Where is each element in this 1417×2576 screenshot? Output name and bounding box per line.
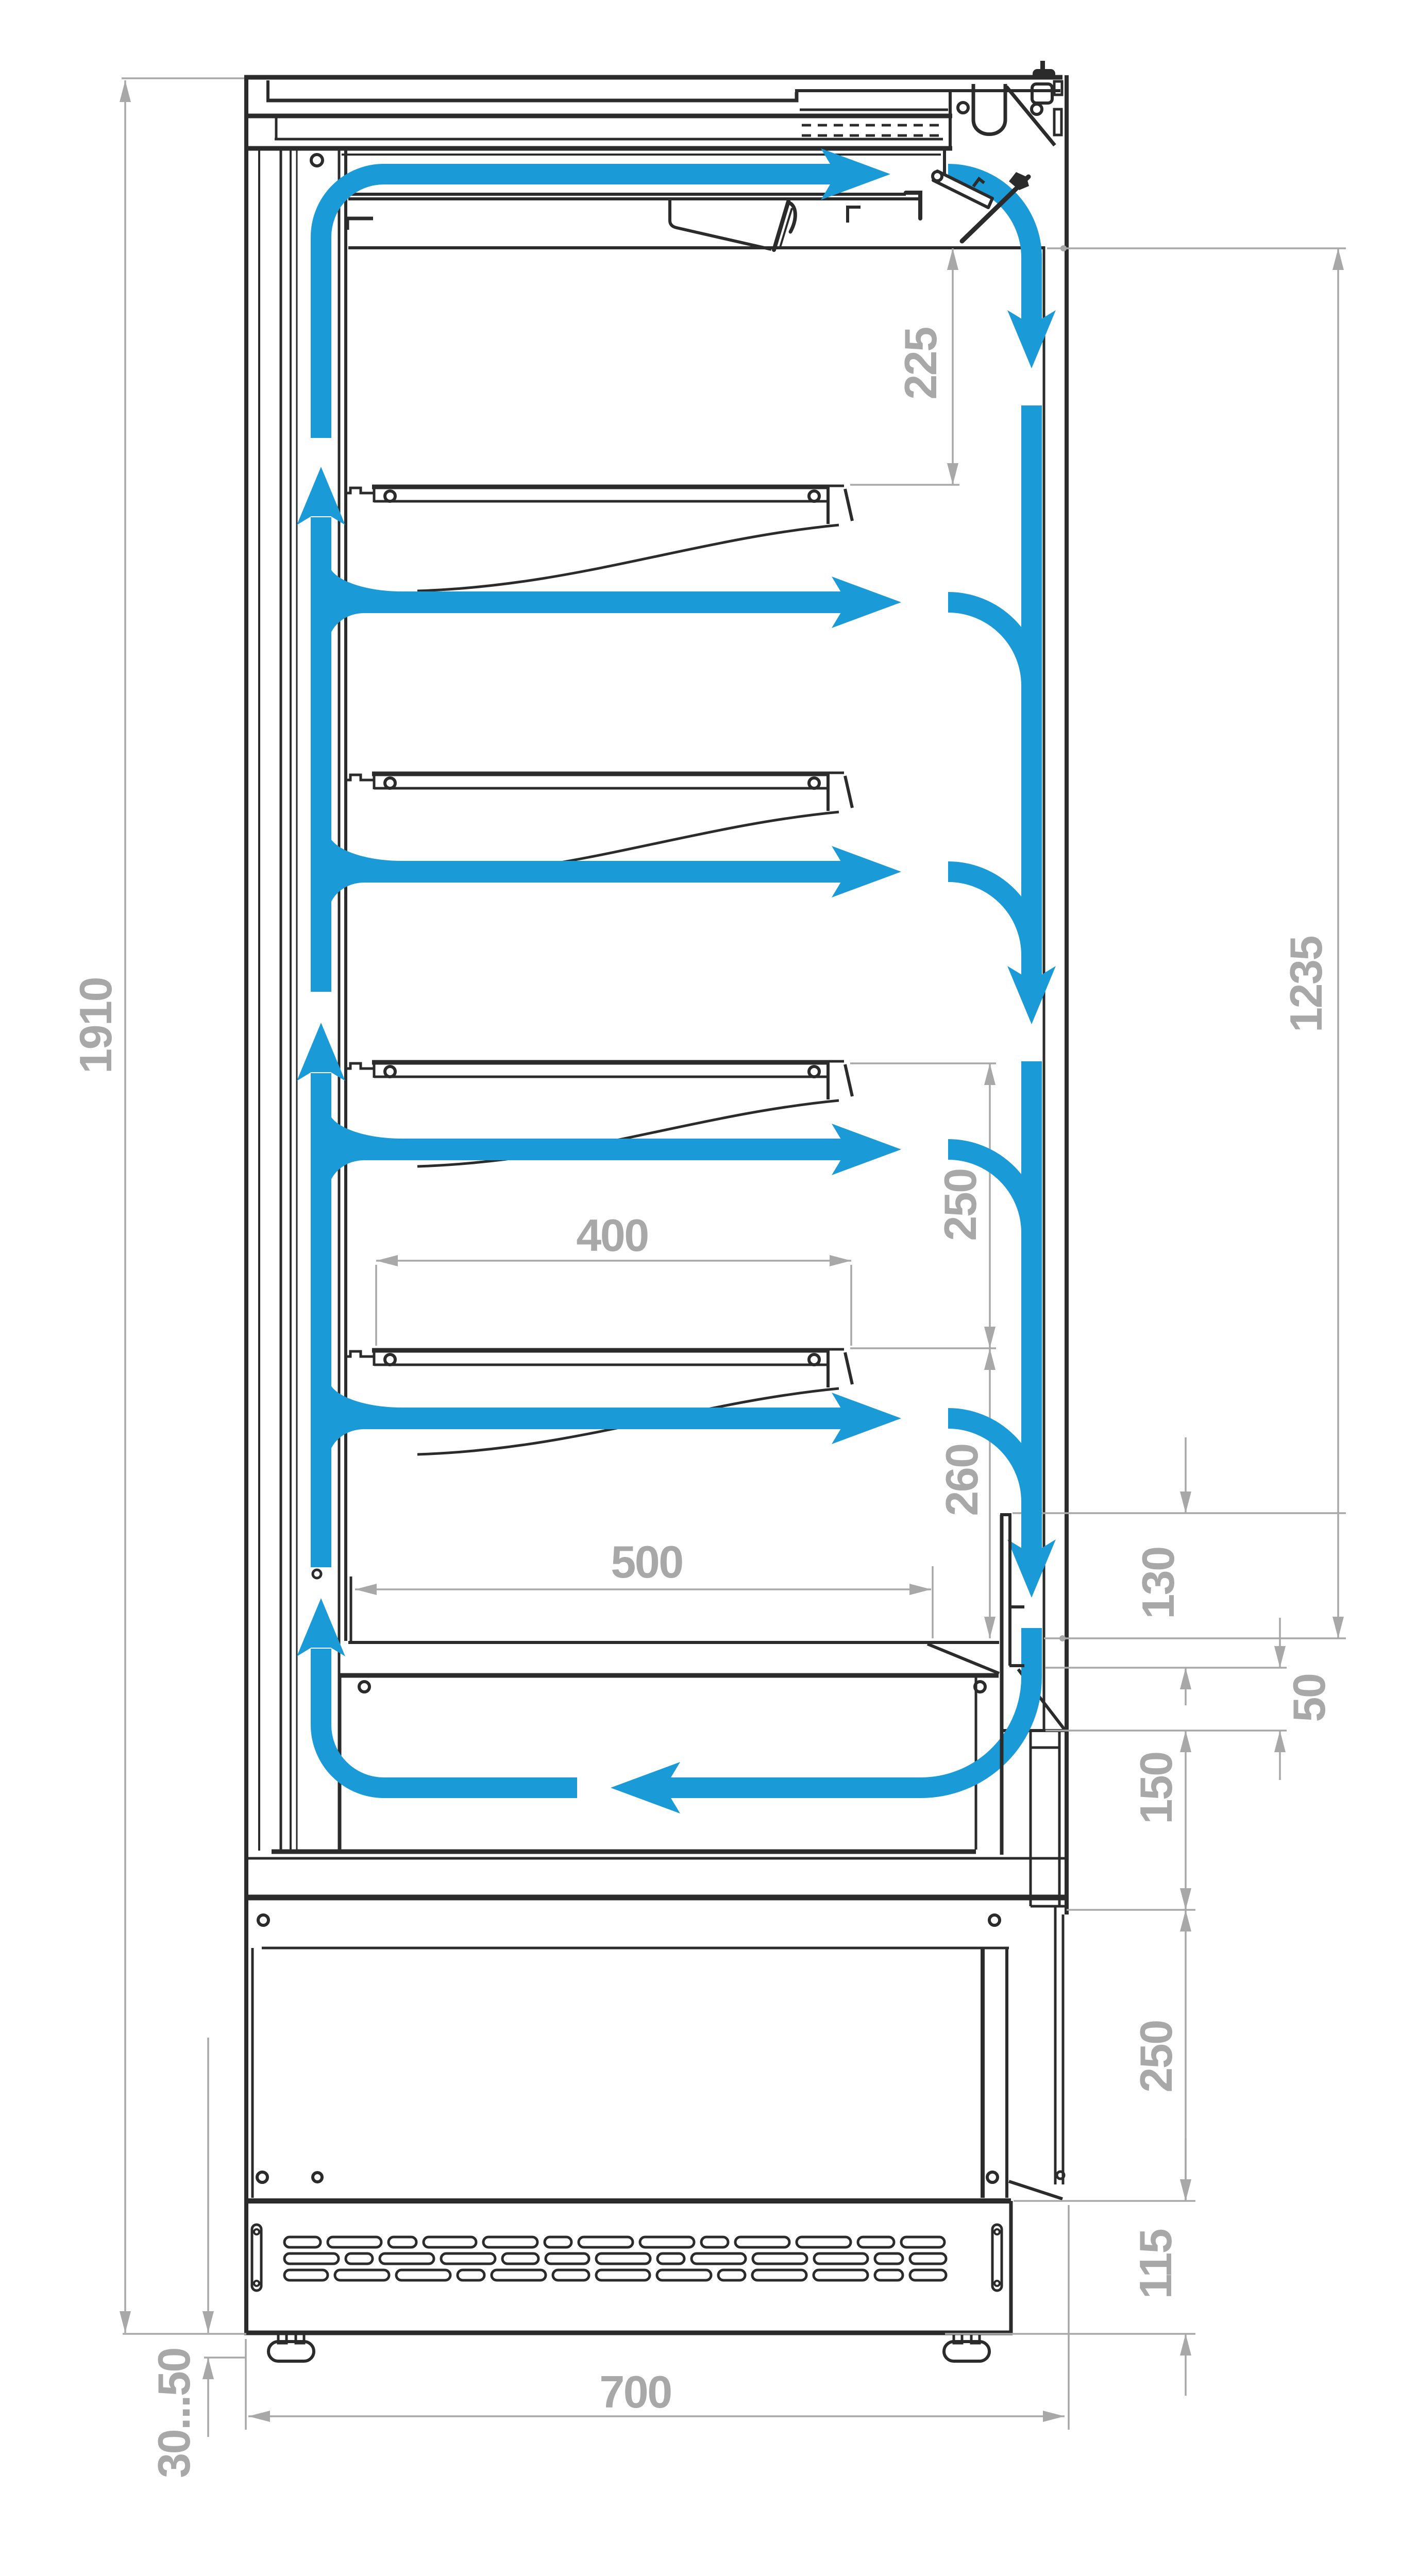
svg-text:250: 250 <box>935 1169 986 1241</box>
svg-text:115: 115 <box>1130 2229 1181 2299</box>
svg-text:50: 50 <box>1284 1674 1335 1722</box>
svg-text:250: 250 <box>1131 2021 1182 2092</box>
svg-text:260: 260 <box>936 1444 987 1516</box>
svg-text:150: 150 <box>1131 1752 1182 1824</box>
svg-text:1910: 1910 <box>70 978 121 1074</box>
svg-text:400: 400 <box>576 1210 648 1261</box>
svg-text:500: 500 <box>611 1536 682 1587</box>
svg-text:700: 700 <box>599 2366 671 2417</box>
svg-text:130: 130 <box>1133 1547 1184 1619</box>
svg-text:30...50: 30...50 <box>148 2348 199 2478</box>
svg-text:1235: 1235 <box>1280 937 1331 1032</box>
svg-text:225: 225 <box>895 328 946 400</box>
